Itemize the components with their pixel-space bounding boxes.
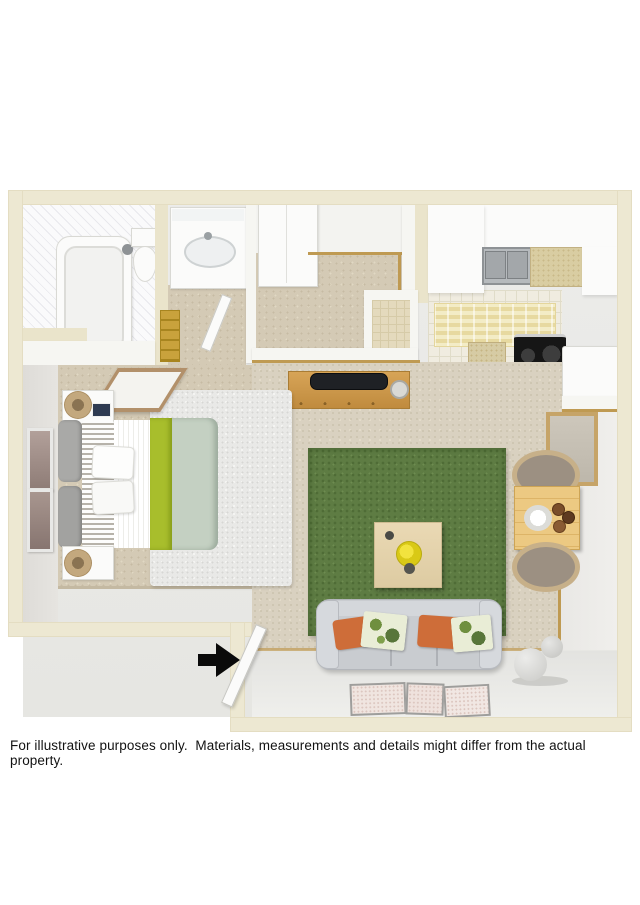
- bedroom-floor-trim: [58, 586, 252, 589]
- lamp-bottom: [64, 549, 92, 577]
- wood-towel-rack: [160, 310, 180, 362]
- bedroom-closet-wall: [23, 341, 155, 365]
- bed-headboard-pillow-2: [58, 486, 82, 548]
- closet-partition-wall: [246, 205, 256, 363]
- bedroom-wall-picture-1: [27, 428, 53, 491]
- floor-frame-2: [405, 682, 444, 715]
- living-room-threshold-trim: [252, 360, 420, 363]
- storage-cabinet: [258, 201, 318, 287]
- decor-sphere-small: [541, 636, 563, 658]
- outer-wall-bottom: [230, 717, 632, 732]
- table-decor-small: [385, 531, 394, 540]
- bed-accent-pillow-2: [91, 480, 135, 515]
- sofa-pillow-leaf-right: [451, 614, 494, 652]
- television: [310, 373, 388, 390]
- outer-wall-bedroom-bottom: [8, 622, 252, 637]
- hall-closet-floor: [372, 300, 410, 354]
- bathroom-lower-wall-stub: [23, 328, 87, 341]
- kitchen-sink-basin-left: [485, 251, 506, 279]
- bed-runner-green: [150, 418, 172, 550]
- vanity-faucet: [204, 232, 212, 240]
- floor-frame-3: [443, 684, 491, 718]
- table-decor-small-2: [404, 563, 415, 574]
- bed-headboard-pillow-1: [58, 420, 82, 482]
- floor-frame-1: [349, 682, 406, 716]
- closet-threshold-trim-top: [308, 252, 402, 255]
- bedroom-wall-picture-2: [27, 489, 53, 552]
- vanity-counter-back: [172, 209, 244, 221]
- disclaimer-text: For illustrative purposes only. Material…: [10, 738, 634, 768]
- bed-blanket-sage: [172, 418, 218, 550]
- entry-arrow-icon: [196, 640, 242, 680]
- sofa-pillow-leaf-left: [360, 611, 408, 651]
- kitchen-countertop-tan: [530, 247, 584, 287]
- kitchen-left-wall: [415, 205, 428, 303]
- outer-wall-right: [617, 190, 632, 732]
- vanity-sink: [184, 236, 236, 268]
- sofa-backrest: [322, 601, 494, 616]
- floor-plan-figure: For illustrative purposes only. Material…: [0, 0, 640, 905]
- tablet-on-nightstand: [92, 403, 111, 417]
- living-room-top-wall: [252, 348, 418, 360]
- lamp-top: [64, 391, 92, 419]
- kitchen-sink-basin-right: [507, 251, 528, 279]
- storage-cabinet-door-seam: [286, 203, 287, 283]
- outer-wall-left: [8, 190, 23, 637]
- bed-accent-pillow-1: [91, 445, 135, 480]
- console-decor-bowl: [390, 380, 409, 399]
- dining-bowl-3: [553, 520, 566, 533]
- kitchen-left-counter: [428, 205, 484, 293]
- outer-wall-top: [8, 190, 632, 205]
- kitchen-right-counter: [582, 247, 617, 295]
- dining-centerpiece-flowers: [524, 505, 552, 531]
- dining-chair-bottom: [512, 542, 580, 592]
